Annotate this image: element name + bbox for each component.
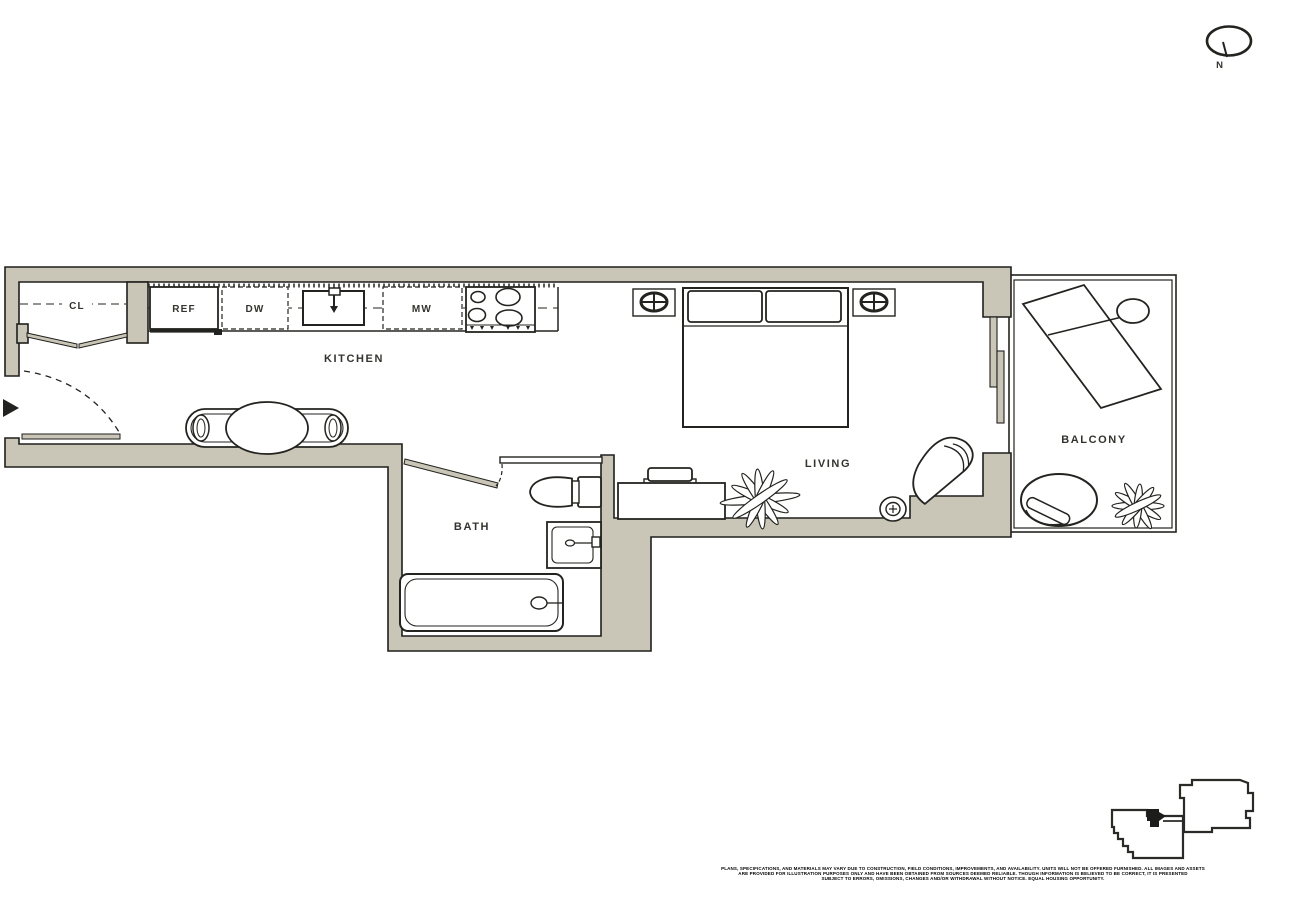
unit-location-marker [1147,809,1166,827]
closet-label: CL [69,301,85,312]
kitchen-sink [303,288,364,325]
dresser [618,468,725,519]
bath-top-wall [500,457,602,463]
ceiling-light-icon [633,289,675,316]
closet-jamb [17,324,28,343]
bathroom [400,457,602,631]
bath-label: BATH [454,521,490,533]
bathtub [400,574,563,631]
floor-plan-drawing: N CL REF DW MW KITCHEN LIVING BATH BALCO… [0,0,1310,917]
sliding-door-panel [997,351,1004,423]
building-key-plan [1112,780,1253,858]
entry-door-leaf [22,434,120,439]
microwave-label: MW [412,304,432,315]
entry-door-swing [24,371,119,432]
entry-arrow-icon [3,399,19,417]
wall-closet-column [127,282,148,343]
bath-door-leaf [404,459,498,488]
dining-chair [193,415,209,441]
ceiling-light-icon [853,289,895,316]
balcony-label: BALCONY [1061,434,1127,446]
kitchen-counter [148,286,558,336]
entry [3,371,120,439]
bedroom-furniture [633,288,895,427]
armchair [899,428,980,505]
balcony [1009,275,1176,532]
dining-table [186,402,348,454]
toilet [530,477,601,507]
closet-bifold-door [79,333,127,348]
round-chair [1021,474,1097,526]
balcony-table [1117,299,1149,323]
stove [466,287,535,332]
north-arrow: N [1207,27,1251,72]
bed [683,288,848,427]
disclaimer-text: PLANS, SPECIFICATIONS, AND MATERIALS MAY… [685,867,1241,882]
bath-sink [547,522,601,568]
kitchen-label: KITCHEN [324,353,384,365]
dining-chair [325,415,341,441]
wall-light-icon [880,497,906,521]
dishwasher-label: DW [245,304,264,315]
north-label: N [1216,60,1224,71]
sliding-door-panel [990,317,997,387]
refrigerator-label: REF [172,304,196,315]
living-label: LIVING [805,458,851,470]
disclaimer-line: SUBJECT TO ERRORS, OMISSIONS, CHANGES AN… [685,877,1241,882]
closet-bifold-door [27,333,77,348]
floor-plan-page: N CL REF DW MW KITCHEN LIVING BATH BALCO… [0,0,1310,917]
